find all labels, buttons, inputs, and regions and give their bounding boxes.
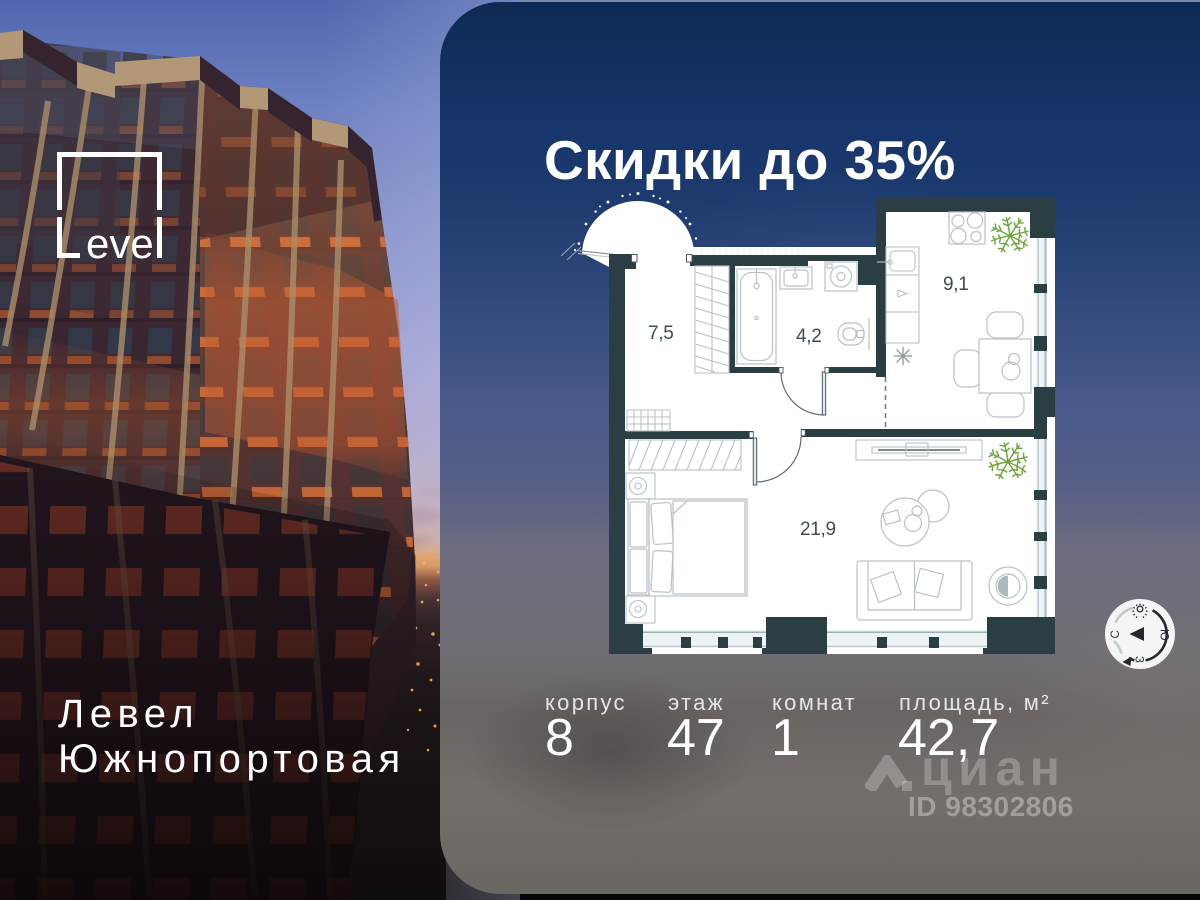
- svg-text:С: С: [1110, 630, 1122, 638]
- svg-text:4,2: 4,2: [796, 326, 822, 347]
- svg-text:21,9: 21,9: [800, 519, 836, 540]
- svg-text:7,5: 7,5: [648, 323, 674, 344]
- svg-text:eve: eve: [86, 220, 154, 267]
- svg-text:9,1: 9,1: [943, 274, 969, 295]
